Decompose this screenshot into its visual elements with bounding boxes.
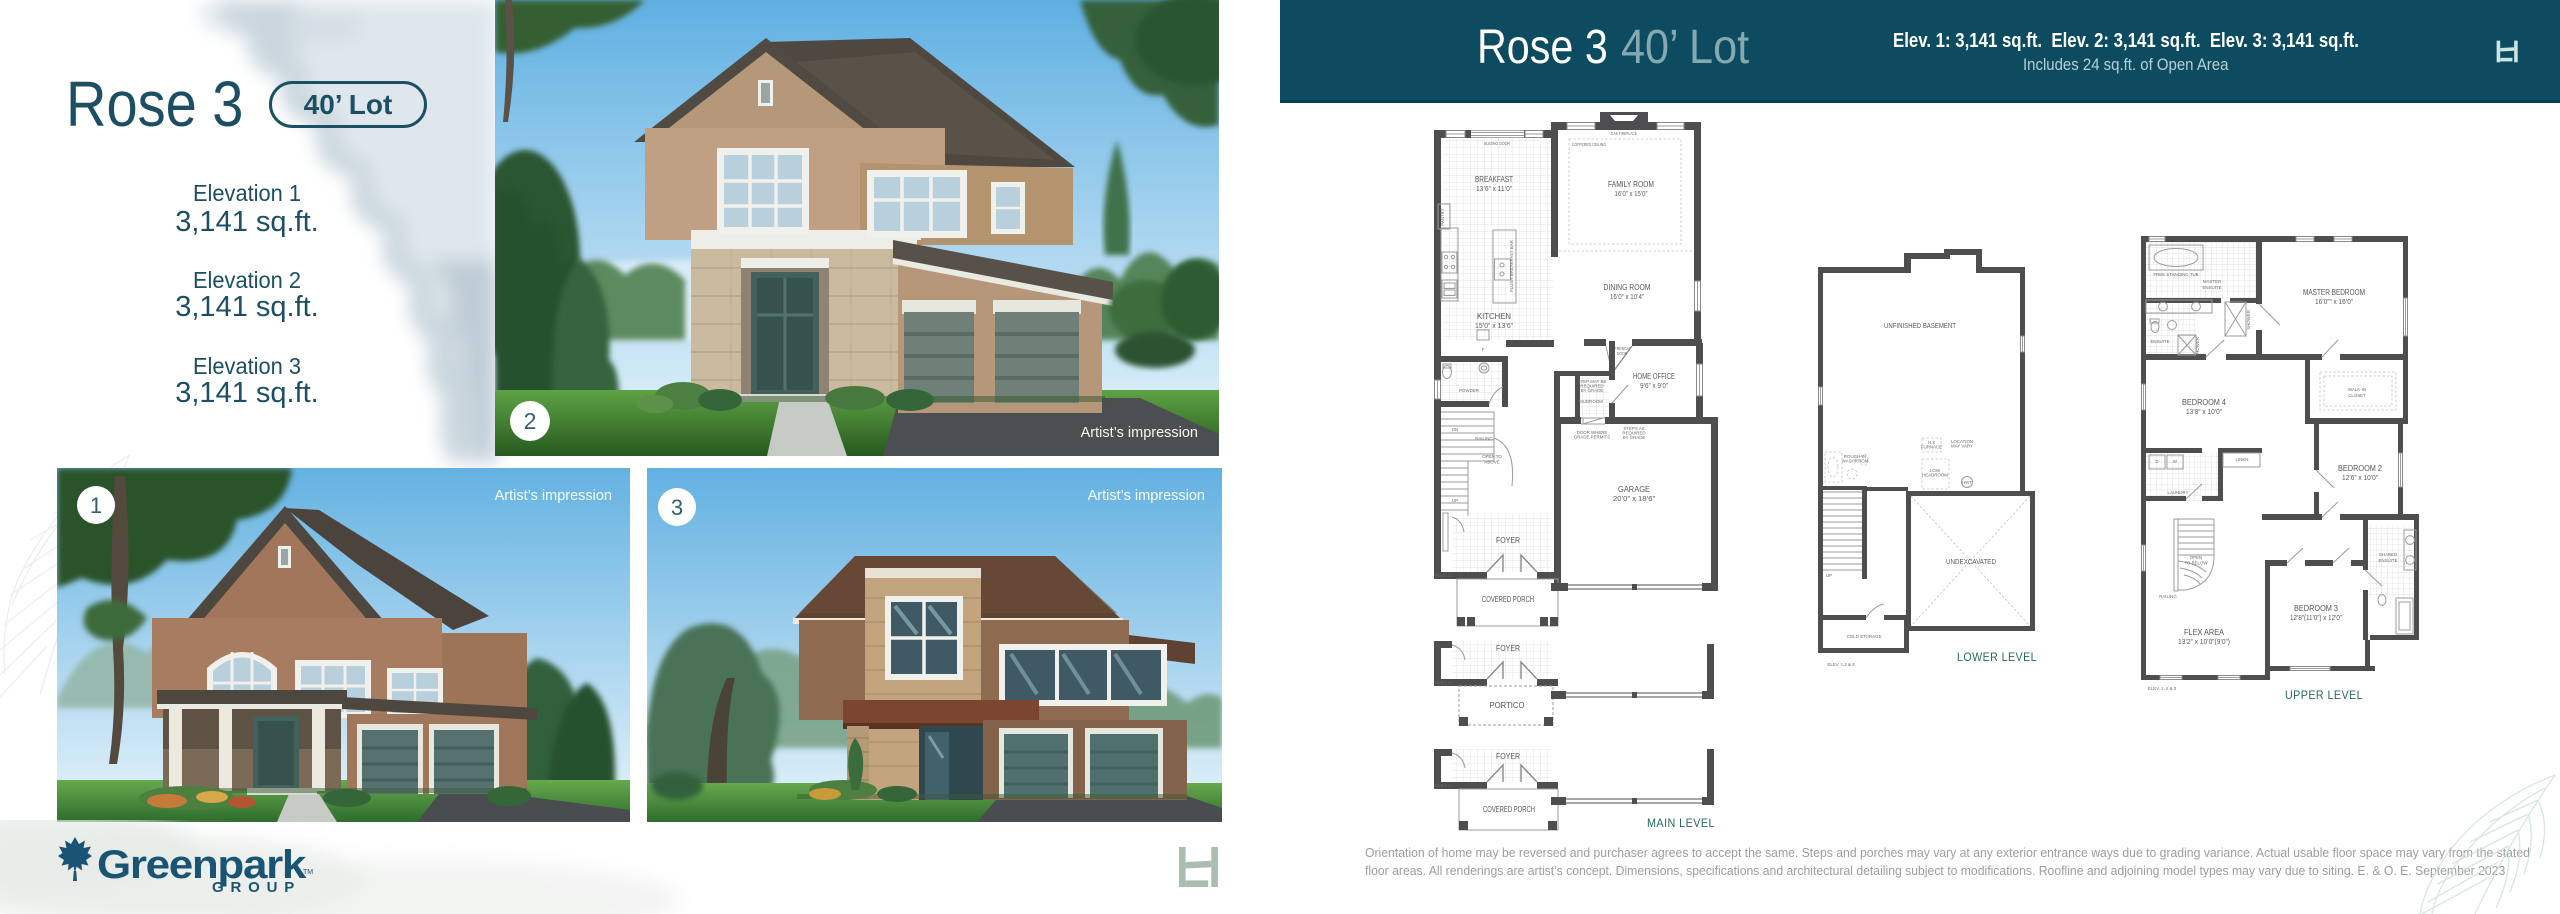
svg-text:FOYER: FOYER [1496,643,1520,653]
svg-text:MASTER: MASTER [2203,279,2221,284]
svg-text:PORTICO: PORTICO [1490,700,1525,710]
svg-text:OPEN: OPEN [2190,555,2202,560]
svg-text:ELEV. 1,2 & 3: ELEV. 1,2 & 3 [1827,662,1855,667]
svg-text:GRADE PERMITS: GRADE PERMITS [1574,435,1610,440]
svg-text:ENSUITE: ENSUITE [2150,339,2169,344]
svg-text:GARAGE: GARAGE [1618,484,1650,494]
svg-text:1: 1 [90,493,102,518]
svg-text:SHOWER: SHOWER [2195,337,2200,357]
svg-text:KITCHEN: KITCHEN [1477,311,1511,321]
svg-text:20’0” x 18’6”: 20’0” x 18’6” [1613,496,1656,503]
svg-text:D: D [2155,459,2158,464]
svg-text:COVERED PORCH: COVERED PORCH [1482,594,1534,604]
svg-text:FLEX AREA: FLEX AREA [2184,627,2224,637]
svg-text:UP: UP [1452,498,1458,503]
svg-text:DOOR: DOOR [1617,351,1627,356]
svg-text:SLIDING DOOR: SLIDING DOOR [1484,141,1510,146]
svg-text:LOWER LEVEL: LOWER LEVEL [1957,650,2037,664]
svg-text:PANTRY: PANTRY [1440,208,1445,225]
svg-text:SHOWER: SHOWER [2246,310,2251,330]
svg-text:13’8” x 10’0”: 13’8” x 10’0” [2186,409,2223,416]
svg-text:MUDROOM: MUDROOM [1579,399,1603,404]
svg-text:16’0”” x 16’0”: 16’0”” x 16’0” [2315,299,2354,306]
svg-text:HWT: HWT [1962,480,1972,485]
svg-text:COVERED PORCH: COVERED PORCH [1483,804,1535,814]
svg-text:13’2” x 10’0”(9’0”): 13’2” x 10’0”(9’0”) [2178,639,2230,646]
svg-text:HOME OFFICE: HOME OFFICE [1633,371,1675,381]
svg-text:FREE STANDING TUB: FREE STANDING TUB [2153,272,2198,277]
svg-text:16’0” x 10’4”: 16’0” x 10’4” [1610,294,1645,301]
svg-text:TM: TM [303,869,313,876]
svg-text:WASHROOM: WASHROOM [1842,459,1869,464]
svg-text:UPPER LEVEL: UPPER LEVEL [2285,688,2363,702]
svg-text:ABOVE: ABOVE [1484,460,1499,465]
svg-text:9’6” x 9’0”: 9’6” x 9’0” [1640,383,1669,390]
svg-text:ELEV. 3: ELEV. 3 [1435,783,1451,788]
svg-text:RAILING: RAILING [2159,594,2177,599]
svg-text:BY GRADE: BY GRADE [1623,435,1646,440]
svg-text:FURNACE: FURNACE [1921,445,1942,450]
svg-text:ELEV. 2: ELEV. 2 [1435,680,1451,685]
svg-text:MAIN LEVEL: MAIN LEVEL [1647,816,1715,830]
svg-text:COFFERED CEILING: COFFERED CEILING [1572,142,1606,147]
svg-text:POWDER: POWDER [1459,388,1479,393]
svg-text:FLUSH BREAKFAST BAR: FLUSH BREAKFAST BAR [1509,240,1514,292]
svg-text:12’6” x 10’0”: 12’6” x 10’0” [2342,475,2379,482]
svg-text:SHARED: SHARED [2379,552,2397,557]
svg-text:OPEN TO: OPEN TO [1482,454,1502,459]
svg-text:FAMILY ROOM: FAMILY ROOM [1608,179,1654,189]
svg-text:MAY VARY: MAY VARY [1951,444,1973,449]
svg-text:BEDROOM 3: BEDROOM 3 [2294,603,2338,613]
svg-text:UNDEXCAVATED: UNDEXCAVATED [1946,559,1996,566]
svg-text:MASTER BEDROOM: MASTER BEDROOM [2303,287,2365,297]
svg-text:15’0” x 13’6”: 15’0” x 13’6” [1475,323,1514,330]
svg-text:ENSUITE: ENSUITE [2202,285,2221,290]
svg-text:FOYER: FOYER [1496,535,1520,545]
svg-text:Artist’s impression: Artist’s impression [495,488,612,504]
svg-text:COLD STORAGE: COLD STORAGE [1847,634,1882,639]
svg-text:DINING ROOM: DINING ROOM [1604,282,1651,292]
svg-text:2: 2 [524,408,537,434]
svg-text:GAS FIREPLACE: GAS FIREPLACE [1611,131,1637,136]
svg-text:16’0” x 15’0”: 16’0” x 15’0” [1615,191,1649,198]
svg-text:UP: UP [1826,573,1832,578]
svg-text:LINEN: LINEN [2236,457,2249,462]
svg-text:ELEV. 1: ELEV. 1 [1435,573,1451,578]
svg-text:ENSUITE: ENSUITE [2378,558,2397,563]
svg-text:HEADROOM: HEADROOM [1922,473,1948,478]
svg-text:CLOSET: CLOSET [2348,393,2366,398]
svg-text:TO BELOW: TO BELOW [2184,561,2208,566]
svg-text:13’6” x 11’0”: 13’6” x 11’0” [1476,186,1513,193]
svg-text:Artist’s impression: Artist’s impression [1081,425,1198,441]
svg-text:ELEV. 1, 2 & 3: ELEV. 1, 2 & 3 [2148,686,2177,691]
svg-text:BREAKFAST: BREAKFAST [1475,174,1513,184]
svg-text:Artist’s impression: Artist’s impression [1088,488,1205,504]
svg-text:DN: DN [1452,427,1458,432]
svg-text:12’8”(11’0”) x 12’0”: 12’8”(11’0”) x 12’0” [2290,615,2343,622]
svg-text:WALK-IN: WALK-IN [2348,387,2366,392]
svg-text:BEDROOM 2: BEDROOM 2 [2338,463,2382,473]
svg-text:UNFINISHED BASEMENT: UNFINISHED BASEMENT [1884,323,1957,330]
svg-text:3: 3 [671,495,683,520]
svg-text:FOYER: FOYER [1496,751,1520,761]
svg-text:RAILING: RAILING [1475,436,1493,441]
svg-text:F: F [1482,347,1485,352]
svg-text:LAUNDRY: LAUNDRY [2168,490,2189,495]
svg-text:GROUP: GROUP [212,879,301,896]
svg-text:BEDROOM 4: BEDROOM 4 [2182,397,2226,407]
svg-text:BY GRADE: BY GRADE [1581,388,1604,393]
